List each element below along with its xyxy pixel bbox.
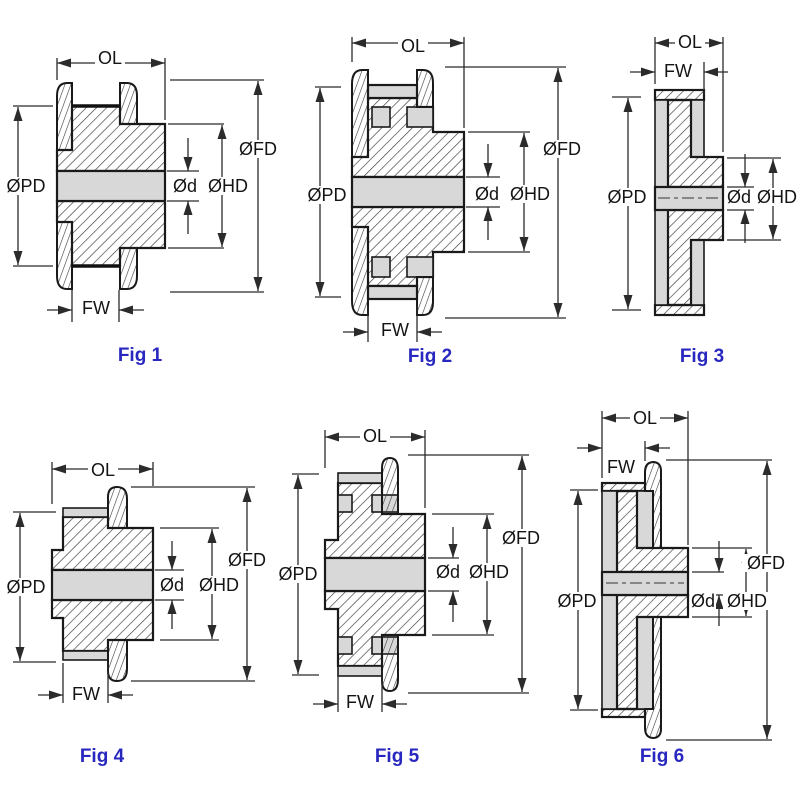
flange-bottom-right	[417, 277, 433, 315]
tooth-strip	[338, 666, 382, 676]
flange-bottom	[382, 635, 398, 691]
face-groove	[655, 210, 668, 305]
tooth-recess	[407, 107, 433, 127]
dim-label-d: Ød	[475, 184, 499, 204]
bore	[325, 558, 425, 591]
body-upper-section	[57, 106, 165, 171]
flange-top-left	[57, 83, 72, 150]
figure-4: OL ØPD Ød ØHD ØFD FW Fig 4	[4, 460, 271, 767]
dim-label-fw: FW	[346, 692, 374, 712]
bore	[52, 570, 153, 600]
dim-label-d: Ød	[160, 575, 184, 595]
dim-label-fd: ØFD	[502, 528, 540, 548]
pulley-body	[655, 90, 723, 315]
tooth-recess	[372, 107, 390, 127]
face-groove	[602, 491, 617, 572]
face-groove	[691, 240, 704, 305]
dim-label-fw: FW	[664, 61, 692, 81]
tooth-recess	[372, 257, 390, 277]
dim-label-fw: FW	[381, 320, 409, 340]
figure-caption: Fig 5	[375, 746, 420, 767]
dim-label-d: Ød	[727, 187, 751, 207]
figure-caption: Fig 4	[80, 746, 125, 767]
dim-label-pd: ØPD	[6, 176, 45, 196]
flange-top-left	[352, 70, 368, 157]
flange-bottom-right	[120, 248, 137, 289]
body-upper-section	[52, 517, 153, 570]
dim-label-ol: OL	[633, 408, 657, 428]
pulley-figures-drawing: OL ØPD Ød ØHD ØFD FW Fig 1	[0, 0, 800, 800]
flange-top-right	[417, 70, 433, 107]
rim-cap-bottom	[655, 305, 704, 315]
dim-label-pd: ØPD	[607, 187, 646, 207]
figure-caption: Fig 6	[640, 746, 684, 767]
tooth-strip	[338, 473, 382, 483]
dim-label-hd: ØHD	[469, 562, 509, 582]
dim-label-d: Ød	[173, 176, 197, 196]
dim-label-ol: OL	[91, 460, 115, 480]
figure-5: OL ØPD Ød ØHD ØFD FW Fig 5	[276, 426, 545, 767]
tooth-strip	[63, 508, 108, 517]
dim-label-pd: ØPD	[557, 591, 596, 611]
dim-label-fd: ØFD	[239, 139, 277, 159]
dim-label-pd: ØPD	[307, 185, 346, 205]
diagram-canvas: OL ØPD Ød ØHD ØFD FW Fig 1	[0, 0, 800, 800]
figure-3: OL FW ØPD Ød ØHD Fig 3	[605, 32, 800, 367]
dim-label-ol: OL	[401, 36, 425, 56]
face-groove	[655, 100, 668, 187]
flange-bottom	[108, 640, 127, 681]
dim-label-hd: ØHD	[757, 187, 797, 207]
dim-label-fd: ØFD	[747, 553, 785, 573]
flange-top	[382, 458, 398, 514]
pulley-body	[352, 70, 464, 315]
dim-label-hd: ØHD	[208, 176, 248, 196]
dim-label-hd: ØHD	[727, 591, 767, 611]
bore	[57, 171, 165, 201]
figure-2: OL ØPD Ød ØHD ØFD FW Fig 2	[305, 36, 586, 367]
dim-label-ol: OL	[98, 48, 122, 68]
dim-label-d: Ød	[436, 562, 460, 582]
rim-cap-bottom	[602, 709, 645, 717]
dim-label-fw: FW	[607, 457, 635, 477]
dim-label-fd: ØFD	[228, 550, 266, 570]
tooth-strip	[63, 651, 108, 660]
figure-6: OL FW ØPD Ød ØHD ØFD Fig 6	[554, 408, 790, 767]
dim-label-fd: ØFD	[543, 139, 581, 159]
belt-groove-band	[368, 286, 417, 299]
face-groove	[691, 100, 704, 157]
face-groove	[602, 595, 617, 709]
tooth-recess	[407, 257, 433, 277]
dim-label-ol: OL	[363, 426, 387, 446]
pulley-body	[602, 462, 688, 738]
body-lower-section	[57, 201, 165, 266]
dim-label-pd: ØPD	[278, 564, 317, 584]
pulley-body	[325, 458, 425, 691]
figure-caption: Fig 1	[118, 345, 163, 366]
figure-1: OL ØPD Ød ØHD ØFD FW Fig 1	[4, 48, 282, 366]
dim-label-ol: OL	[678, 32, 702, 52]
dim-label-d: Ød	[691, 591, 715, 611]
bore	[352, 177, 464, 207]
figure-caption: Fig 3	[680, 346, 724, 367]
flange-top	[108, 487, 127, 528]
flange-bottom-left	[57, 222, 72, 289]
face-groove	[637, 491, 653, 548]
dim-label-pd: ØPD	[6, 577, 45, 597]
rim-cap-top	[655, 90, 704, 100]
dim-label-hd: ØHD	[199, 575, 239, 595]
rim-cap-top	[602, 483, 645, 491]
flange-bottom-left	[352, 227, 368, 315]
pulley-body	[57, 83, 165, 289]
dim-label-hd: ØHD	[510, 184, 550, 204]
dim-label-fw: FW	[82, 298, 110, 318]
belt-groove-band	[368, 85, 417, 98]
dim-label-fw: FW	[72, 684, 100, 704]
flange-top-right	[120, 83, 137, 124]
face-groove	[637, 617, 653, 709]
tooth-recess	[338, 637, 352, 654]
tooth-recess	[338, 495, 352, 512]
body-lower-section	[52, 600, 153, 651]
pulley-body	[52, 487, 153, 681]
figure-caption: Fig 2	[408, 346, 452, 367]
